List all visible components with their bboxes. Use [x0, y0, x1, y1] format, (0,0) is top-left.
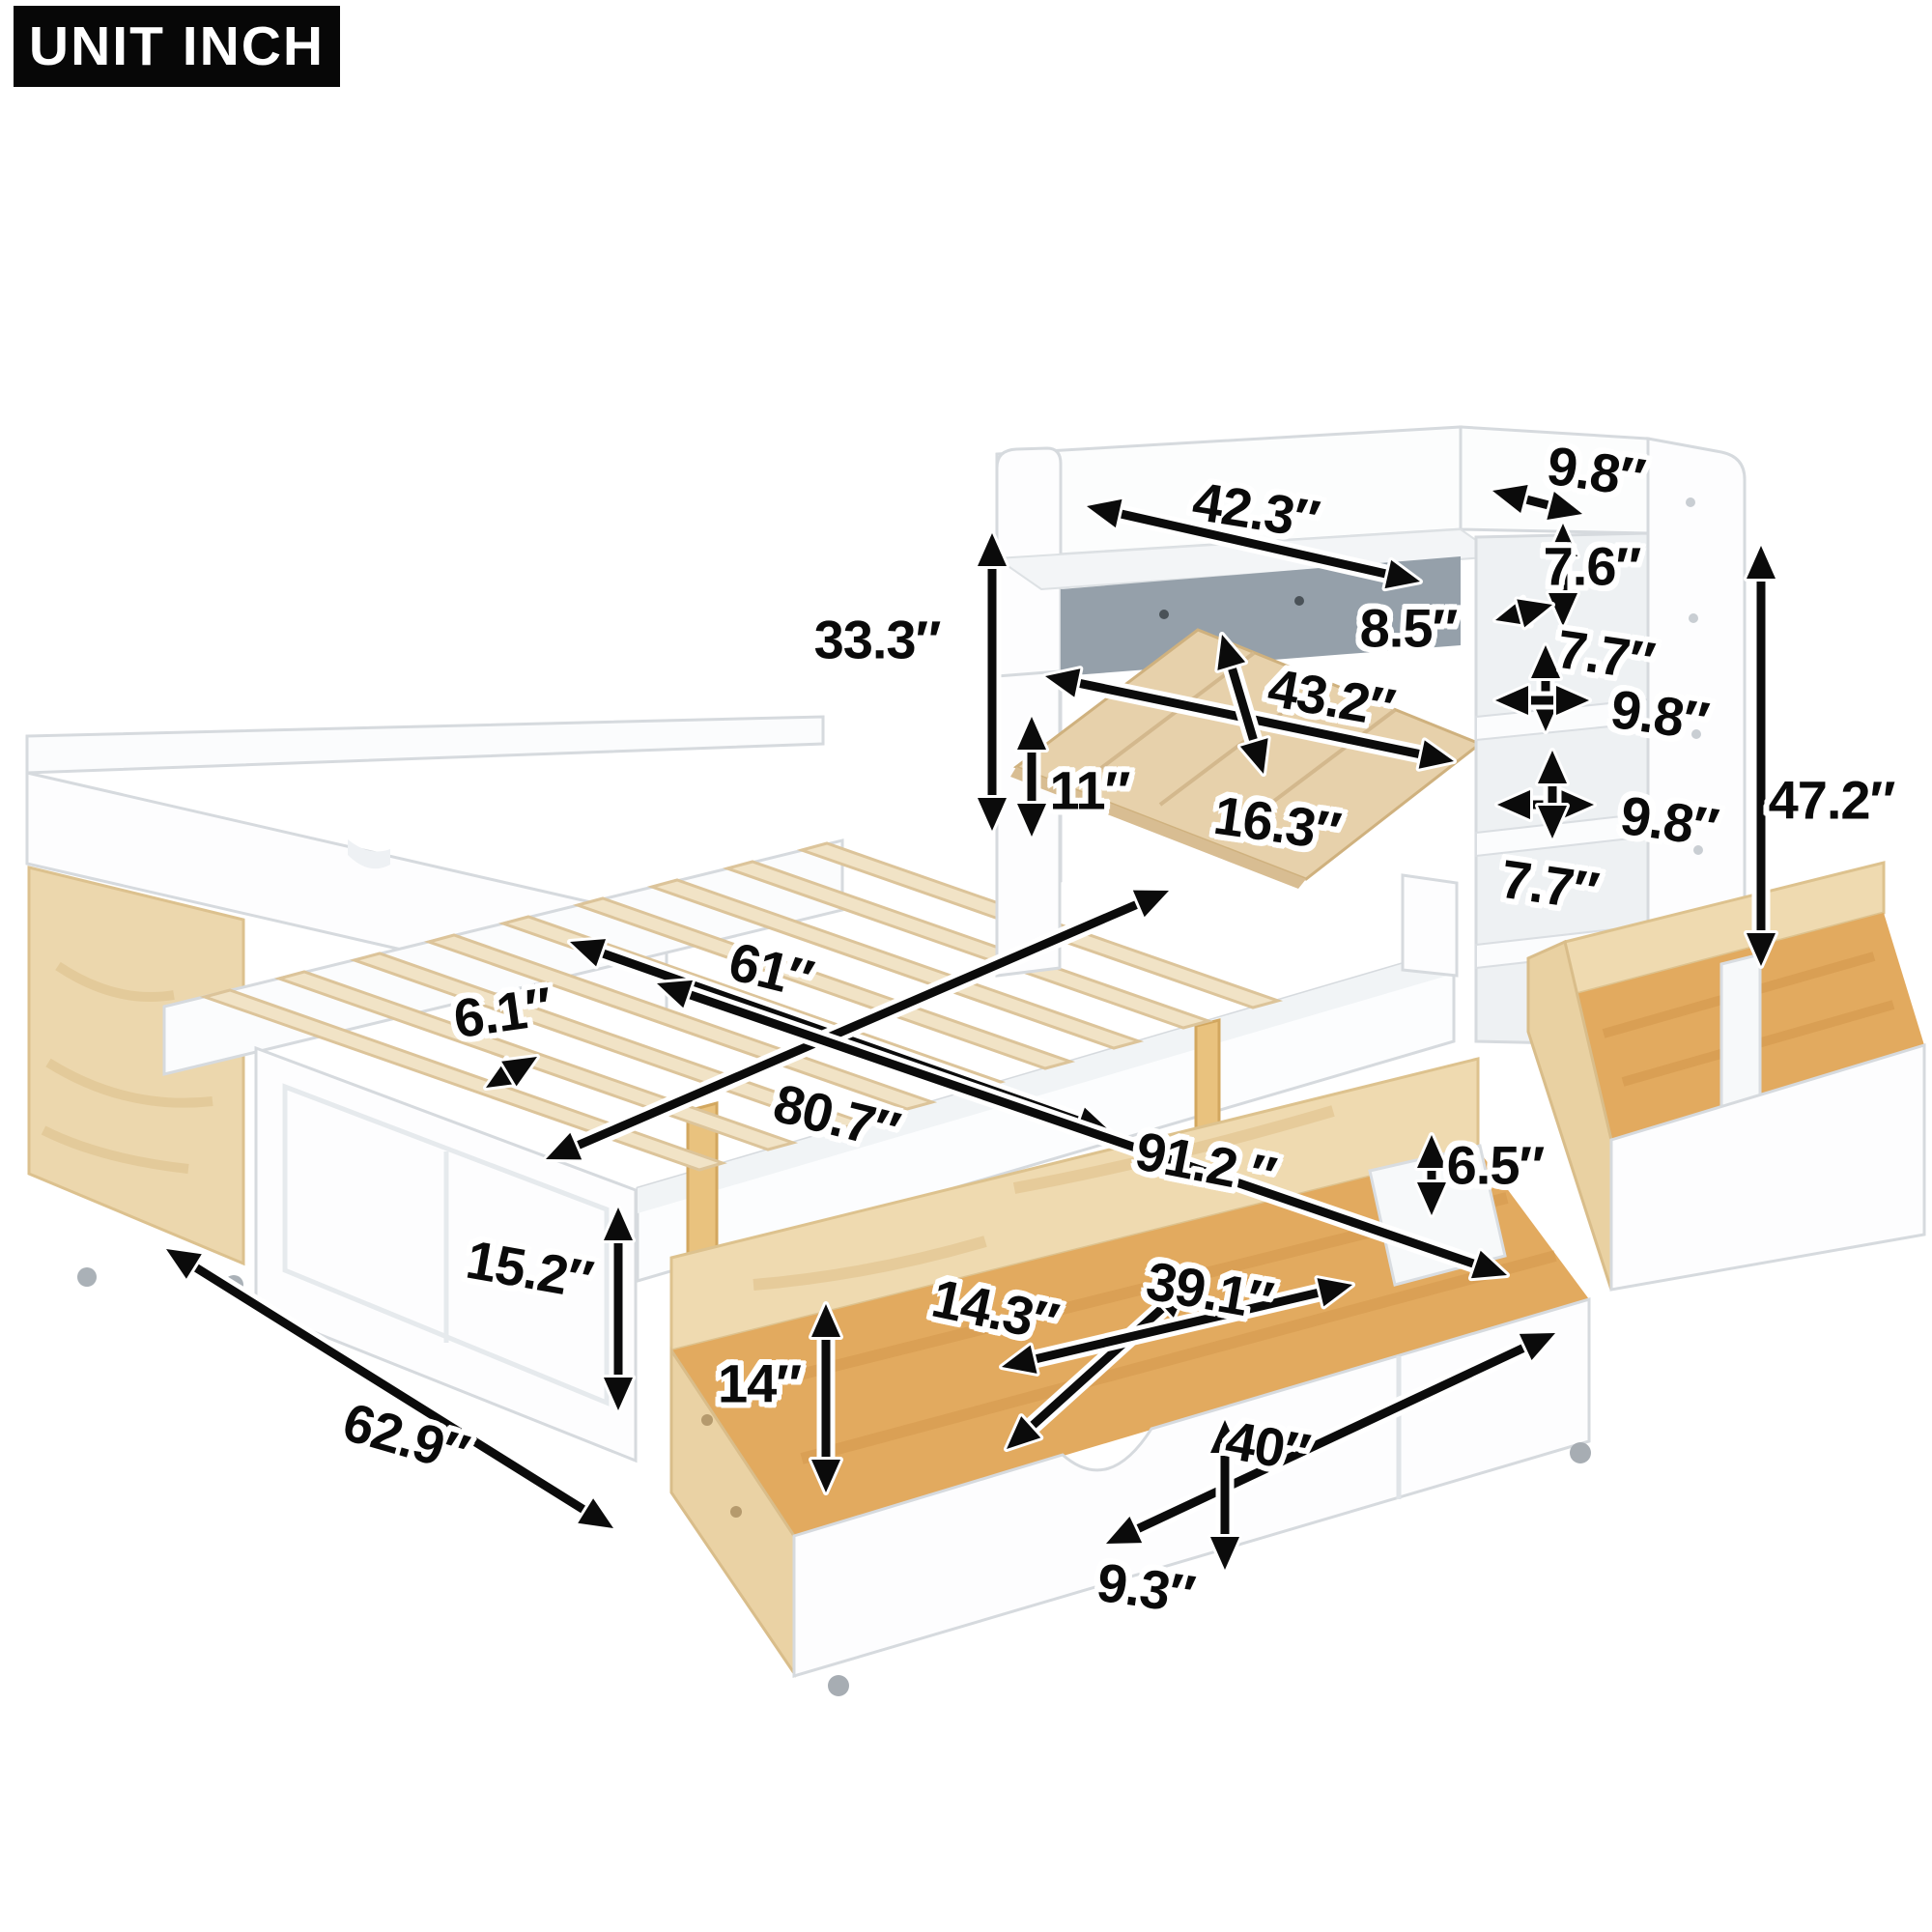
- dimension-diagram: 42.3″9.8″7.6″8.5″33.3″7.7″43.2″9.8″11″16…: [0, 0, 1932, 1932]
- dim-label-drawer-front-height: 9.3″: [1094, 1550, 1199, 1626]
- dim-label-cubby-2-height: 7.7″: [1497, 847, 1603, 923]
- dim-label-trundle-width: 62.9″: [336, 1390, 475, 1486]
- dim-label-slat-span: 61″: [723, 929, 818, 1010]
- unit-badge-label: UNIT INCH: [29, 14, 325, 78]
- dim-label-shelf-top-width: 42.3″: [1188, 469, 1322, 552]
- dim-label-drawer-inner-length: 39.1″: [1142, 1249, 1277, 1333]
- dim-label-leg-clearance: 11″: [1049, 759, 1129, 822]
- dim-label-total-length: 91.2 ″: [1130, 1119, 1280, 1207]
- dim-label-drawer-inner-height: 6.5″: [1447, 1134, 1545, 1197]
- dim-label-drawer-front-length: 40″: [1221, 1408, 1314, 1485]
- dim-label-shelf-top-depth: 9.8″: [1544, 434, 1649, 509]
- dim-label-frame-length: 80.7″: [768, 1071, 906, 1163]
- dim-label-headboard-height: 33.3″: [814, 609, 941, 671]
- unit-badge: UNIT INCH: [14, 6, 340, 87]
- dim-label-drawer-depth: 14.3″: [926, 1266, 1063, 1354]
- dim-label-cubby-1-depth: 9.8″: [1607, 677, 1713, 753]
- dim-label-cubby-2-depth: 9.8″: [1617, 783, 1722, 859]
- dim-label-shelf-top-height: 7.6″: [1544, 535, 1641, 598]
- dim-label-cushion-height: 16.3″: [1210, 783, 1345, 864]
- dim-label-slat-gap: 6.1″: [450, 975, 555, 1050]
- dim-label-shelf-gap: 8.5″: [1360, 597, 1458, 660]
- dim-label-total-height: 47.2″: [1769, 769, 1895, 832]
- dim-label-cushion-width: 43.2″: [1264, 656, 1399, 740]
- dim-label-rail-height: 14″: [718, 1352, 801, 1415]
- dimension-labels: 42.3″9.8″7.6″8.5″33.3″7.7″43.2″9.8″11″16…: [0, 0, 1932, 1932]
- dim-label-footboard-height: 15.2″: [462, 1228, 597, 1312]
